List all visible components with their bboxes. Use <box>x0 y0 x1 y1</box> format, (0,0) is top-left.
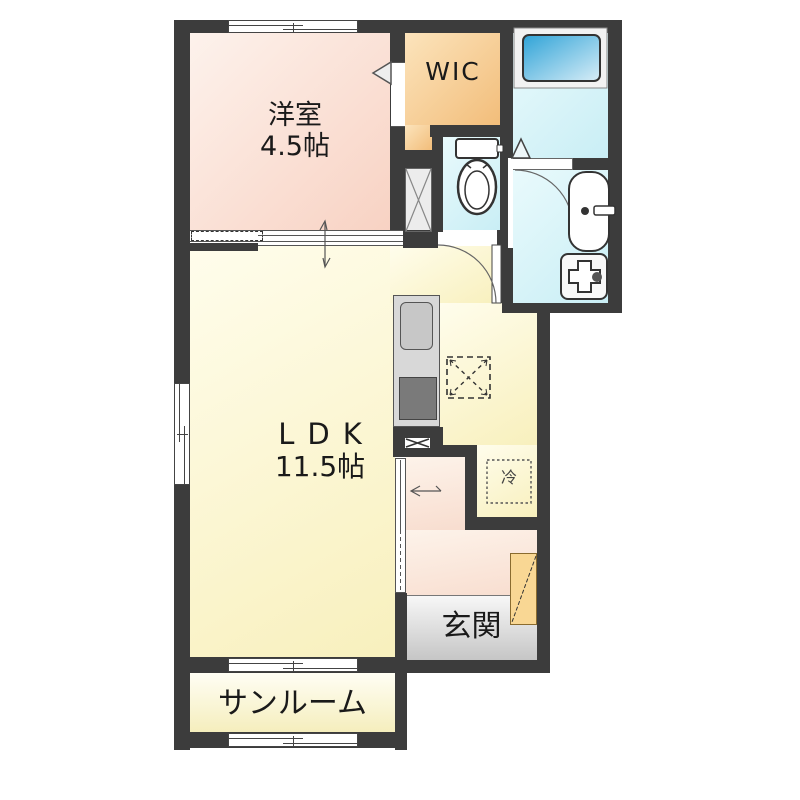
label-sunroom: サンルーム <box>190 687 395 722</box>
kitchen-dashed-space-icon <box>447 357 490 398</box>
yoshitsu-size: 4.5帖 <box>195 131 395 162</box>
pipe-space-x-icon <box>406 169 432 232</box>
wic-door-fold-icon <box>373 62 391 84</box>
label-refrigerator: 冷 <box>487 469 531 487</box>
bath-door-fold-icon <box>512 139 530 158</box>
divider-direction-arrow <box>320 221 330 267</box>
label-yoshitsu: 洋室 4.5帖 <box>195 100 395 162</box>
washing-machine-pan-icon <box>561 254 607 299</box>
toilet-door-arc <box>438 245 496 303</box>
ldk-size: 11.5帖 <box>200 451 440 483</box>
bath-door-arc <box>515 170 573 228</box>
hall-door-direction-arrow <box>411 486 441 496</box>
washbasin-icon <box>569 172 615 251</box>
ldk-name: LDK <box>213 418 440 451</box>
label-wic: WIC <box>405 58 501 87</box>
label-genkan: 玄関 <box>406 610 537 645</box>
toilet-icon <box>456 139 503 214</box>
fixture-layer <box>0 0 800 800</box>
bathtub-icon <box>514 28 607 88</box>
toilet-door-leaf <box>492 245 501 303</box>
label-ldk: LDK 11.5帖 <box>200 418 440 484</box>
yoshitsu-name: 洋室 <box>195 100 395 131</box>
floor-plan: 洋室 4.5帖 WIC LDK 11.5帖 玄関 サンルーム 冷 <box>0 0 800 800</box>
